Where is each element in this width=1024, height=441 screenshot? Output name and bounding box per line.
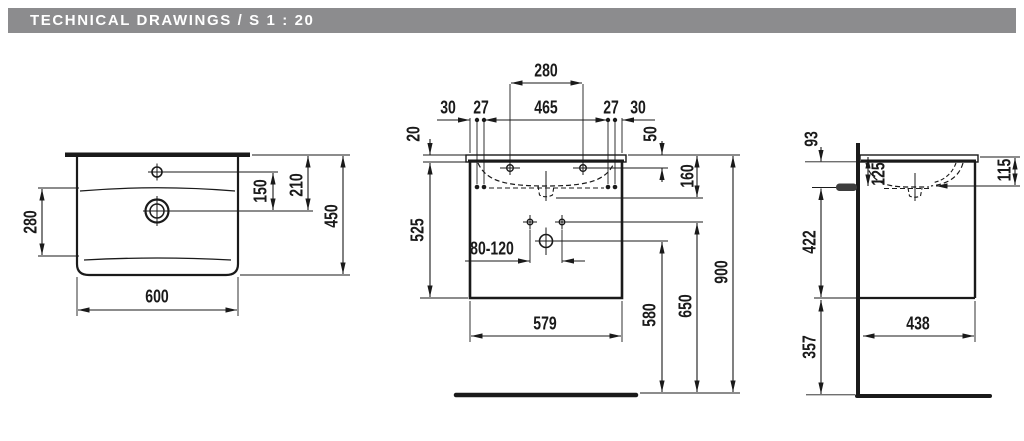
cabinet-front-view	[420, 83, 740, 395]
dim-label-rim-height-900: 900	[712, 260, 733, 283]
dim-label-offset-27-left: 27	[473, 98, 489, 119]
tap-hole-left	[500, 161, 520, 175]
dim-label-top-drain-210: 210	[287, 173, 308, 196]
side-view	[805, 143, 1020, 397]
tap-hole-right	[573, 161, 593, 175]
technical-drawing-page: TECHNICAL DRAWINGS / S 1 : 20	[0, 0, 1024, 441]
dim-label-outlet-height-650: 650	[676, 294, 697, 317]
dim-label-cabinet-height-525: 525	[408, 218, 429, 241]
dim-label-outlet-bottom-422: 422	[800, 230, 821, 253]
dim-label-trap-range-80-120: 80-120	[470, 239, 514, 260]
dim-label-cabinet-depth-438: 438	[906, 314, 929, 335]
dim-label-drain-height-580: 580	[640, 303, 661, 326]
dim-label-basin-width-600: 600	[145, 287, 168, 308]
dim-label-top-bowl-115: 115	[995, 159, 1016, 182]
dim-label-tapspan-280: 280	[534, 61, 557, 82]
trap-connection-right	[555, 215, 569, 229]
dim-label-basin-inner-280: 280	[21, 210, 42, 233]
dim-label-basin-height-450: 450	[322, 204, 343, 227]
dim-label-edge-30-left: 30	[440, 98, 456, 119]
technical-drawing-canvas	[0, 0, 1024, 441]
dim-label-top-thickness-20: 20	[404, 126, 425, 142]
dim-label-cabinet-width-579: 579	[533, 314, 556, 335]
trap-connection-left	[523, 215, 537, 229]
dim-label-faucet-drain-150: 150	[251, 179, 272, 202]
dim-label-edge-30-right: 30	[630, 98, 646, 119]
dim-label-top-outlet-125: 125	[869, 162, 890, 185]
dim-label-bowl-depth-160: 160	[678, 164, 699, 187]
dim-label-offset-27-right: 27	[603, 98, 619, 119]
dim-label-bottom-floor-357: 357	[800, 335, 821, 358]
wall-outlet-stub	[836, 184, 857, 192]
dim-label-tap-height-50: 50	[641, 126, 662, 142]
dim-label-inner-span-465: 465	[534, 98, 557, 119]
basin-rim	[65, 153, 250, 158]
dim-label-wall-outlet-93: 93	[802, 131, 823, 147]
